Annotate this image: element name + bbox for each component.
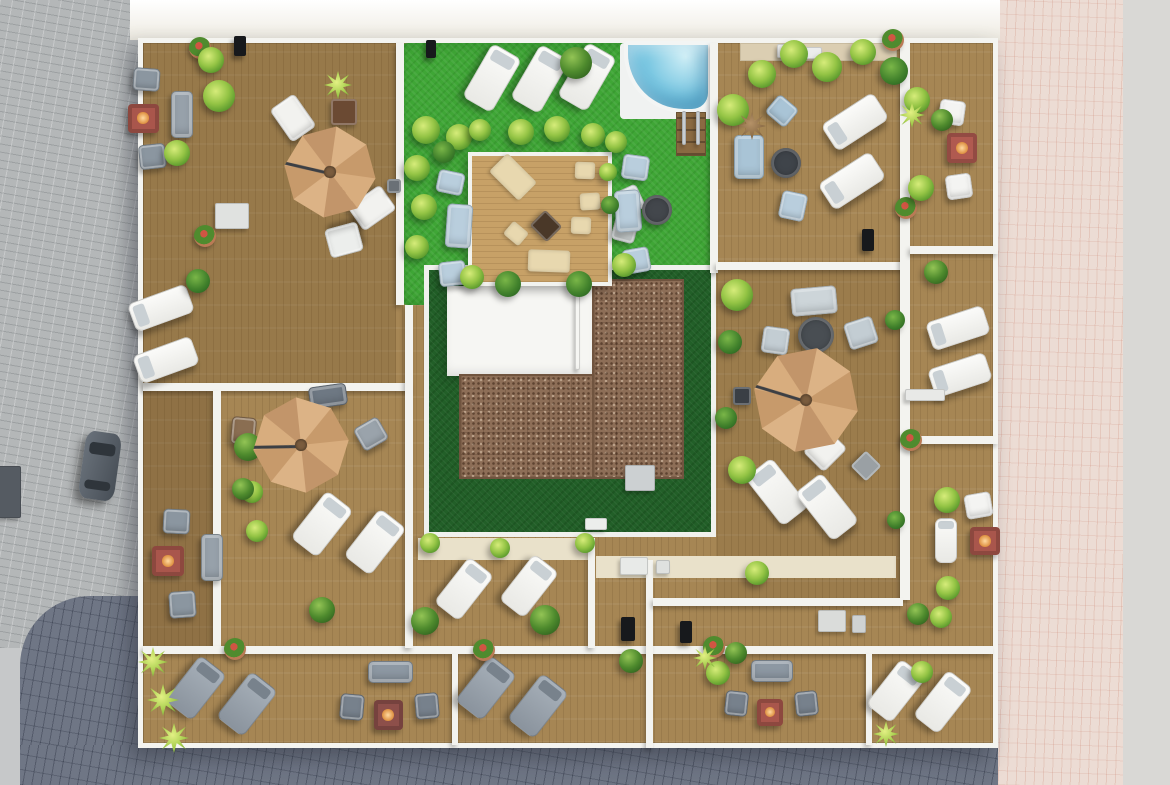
wall-light (621, 617, 635, 641)
armchair (132, 67, 161, 92)
car-windshield (89, 441, 116, 457)
plant (599, 163, 617, 181)
fire-pit-table (757, 699, 783, 726)
lounger-pillow (132, 303, 151, 327)
utility-box (852, 615, 866, 633)
divider-wall (710, 43, 718, 273)
divider-wall (213, 391, 221, 648)
divider-wall (143, 383, 413, 391)
flower-pot (473, 639, 495, 661)
utility-box (656, 560, 670, 574)
utility-box (620, 557, 648, 575)
plant (812, 52, 842, 82)
armchair (414, 692, 440, 720)
street-left-cobblestone (0, 0, 140, 648)
armchair (620, 153, 650, 182)
flower-pot (900, 429, 922, 451)
bush (725, 642, 747, 664)
plant (936, 576, 960, 600)
plant (203, 80, 235, 112)
plant (612, 253, 636, 277)
plant (198, 47, 224, 73)
wall-light (234, 36, 246, 56)
plant (721, 279, 753, 311)
plant (411, 194, 437, 220)
armchair (434, 168, 465, 196)
armchair (339, 693, 365, 721)
plant (850, 39, 876, 65)
bush (232, 478, 254, 500)
sofa (201, 534, 223, 581)
armchair (793, 689, 818, 716)
roof-skylight-strip (575, 290, 580, 370)
flower-pot (224, 638, 246, 660)
plant (508, 119, 534, 145)
plant (246, 520, 268, 542)
pool-steps (676, 112, 706, 156)
plant (433, 141, 455, 163)
deck-cushion (580, 192, 601, 210)
utility-box (696, 111, 700, 145)
street-top-sunlit (130, 0, 1000, 40)
plant (420, 533, 440, 553)
plant (601, 196, 619, 214)
sun-lounger (935, 518, 957, 563)
divider-wall (653, 598, 903, 606)
flower-pot (882, 29, 904, 51)
plant (412, 116, 440, 144)
plant (745, 561, 769, 585)
utility-box (818, 610, 846, 632)
side-table (733, 387, 751, 405)
wall-light (862, 229, 874, 251)
divider-wall (646, 560, 653, 748)
round-table (642, 195, 672, 225)
umbrella-pole (324, 166, 336, 178)
bush (907, 603, 929, 625)
fire-pit-table (152, 546, 184, 576)
bush (924, 260, 948, 284)
sofa (734, 135, 764, 179)
utility-box (625, 465, 655, 491)
bush (411, 607, 439, 635)
plant (728, 456, 756, 484)
sofa (368, 661, 413, 683)
armchair (137, 142, 166, 170)
lounger-pillow (137, 355, 156, 379)
plant (706, 661, 730, 685)
plant (575, 533, 595, 553)
plant (405, 235, 429, 259)
bush (560, 47, 592, 79)
wall-light (680, 621, 692, 643)
plant (887, 511, 905, 529)
plant (495, 271, 521, 297)
divider-wall (910, 246, 998, 254)
armchair (760, 325, 790, 355)
plant (581, 123, 605, 147)
plant (880, 57, 908, 85)
side-table (331, 99, 357, 125)
lounger-pillow (938, 521, 953, 530)
plant (544, 116, 570, 142)
utility-box (682, 111, 686, 145)
utility-box (585, 518, 607, 530)
plant (748, 60, 776, 88)
plant (715, 407, 737, 429)
plant (911, 661, 933, 683)
plant (186, 269, 210, 293)
utility-box (905, 389, 945, 401)
umbrella-pole (798, 392, 813, 407)
armchair (963, 490, 994, 519)
divider-wall (910, 436, 998, 444)
plant (404, 155, 430, 181)
sofa (614, 189, 643, 233)
armchair (723, 689, 748, 716)
sidewalk-right-pavers (998, 0, 1123, 785)
divider-wall (716, 262, 906, 270)
round-table (771, 148, 801, 178)
fire-pit-table (947, 133, 977, 163)
bush (931, 109, 953, 131)
deck-cushion (575, 161, 596, 179)
plant (460, 265, 484, 289)
plant (566, 271, 592, 297)
gravel-roof-a (592, 279, 684, 479)
wall-light (426, 40, 436, 58)
plant (718, 330, 742, 354)
divider-wall (143, 646, 993, 654)
umbrella-pole (295, 439, 308, 452)
armchair (944, 172, 973, 200)
plant (934, 487, 960, 513)
bush (619, 649, 643, 673)
sofa (444, 203, 473, 249)
plant (469, 119, 491, 141)
sofa (171, 91, 193, 138)
deck-cushion (528, 249, 571, 272)
utility-box (215, 203, 249, 229)
plant (930, 606, 952, 628)
deck-cushion (571, 216, 592, 234)
flower-pot (194, 225, 216, 247)
plant (490, 538, 510, 558)
bush (530, 605, 560, 635)
side-table (387, 179, 401, 193)
sofa (751, 660, 793, 682)
fire-pit-table (970, 527, 1000, 555)
plant (780, 40, 808, 68)
plant (605, 131, 627, 153)
round-table (798, 317, 834, 353)
armchair (162, 508, 190, 534)
lounger-pillow (930, 322, 948, 346)
plant (885, 310, 905, 330)
divider-wall (405, 305, 413, 648)
bush (309, 597, 335, 623)
rooftop-aerial-render (0, 0, 1170, 785)
street-bottom-cobblestone (20, 745, 1000, 785)
utility-box (0, 466, 21, 518)
fire-pit-table (374, 700, 403, 730)
fire-pit-table (128, 104, 159, 133)
plant (717, 94, 749, 126)
flower-pot (895, 197, 917, 219)
plant (908, 175, 934, 201)
divider-wall (588, 538, 595, 648)
gravel-roof-b (459, 374, 594, 479)
armchair (168, 590, 197, 619)
sofa (790, 285, 838, 317)
plant (164, 140, 190, 166)
car-rear-window (84, 479, 111, 492)
divider-wall (396, 43, 404, 305)
